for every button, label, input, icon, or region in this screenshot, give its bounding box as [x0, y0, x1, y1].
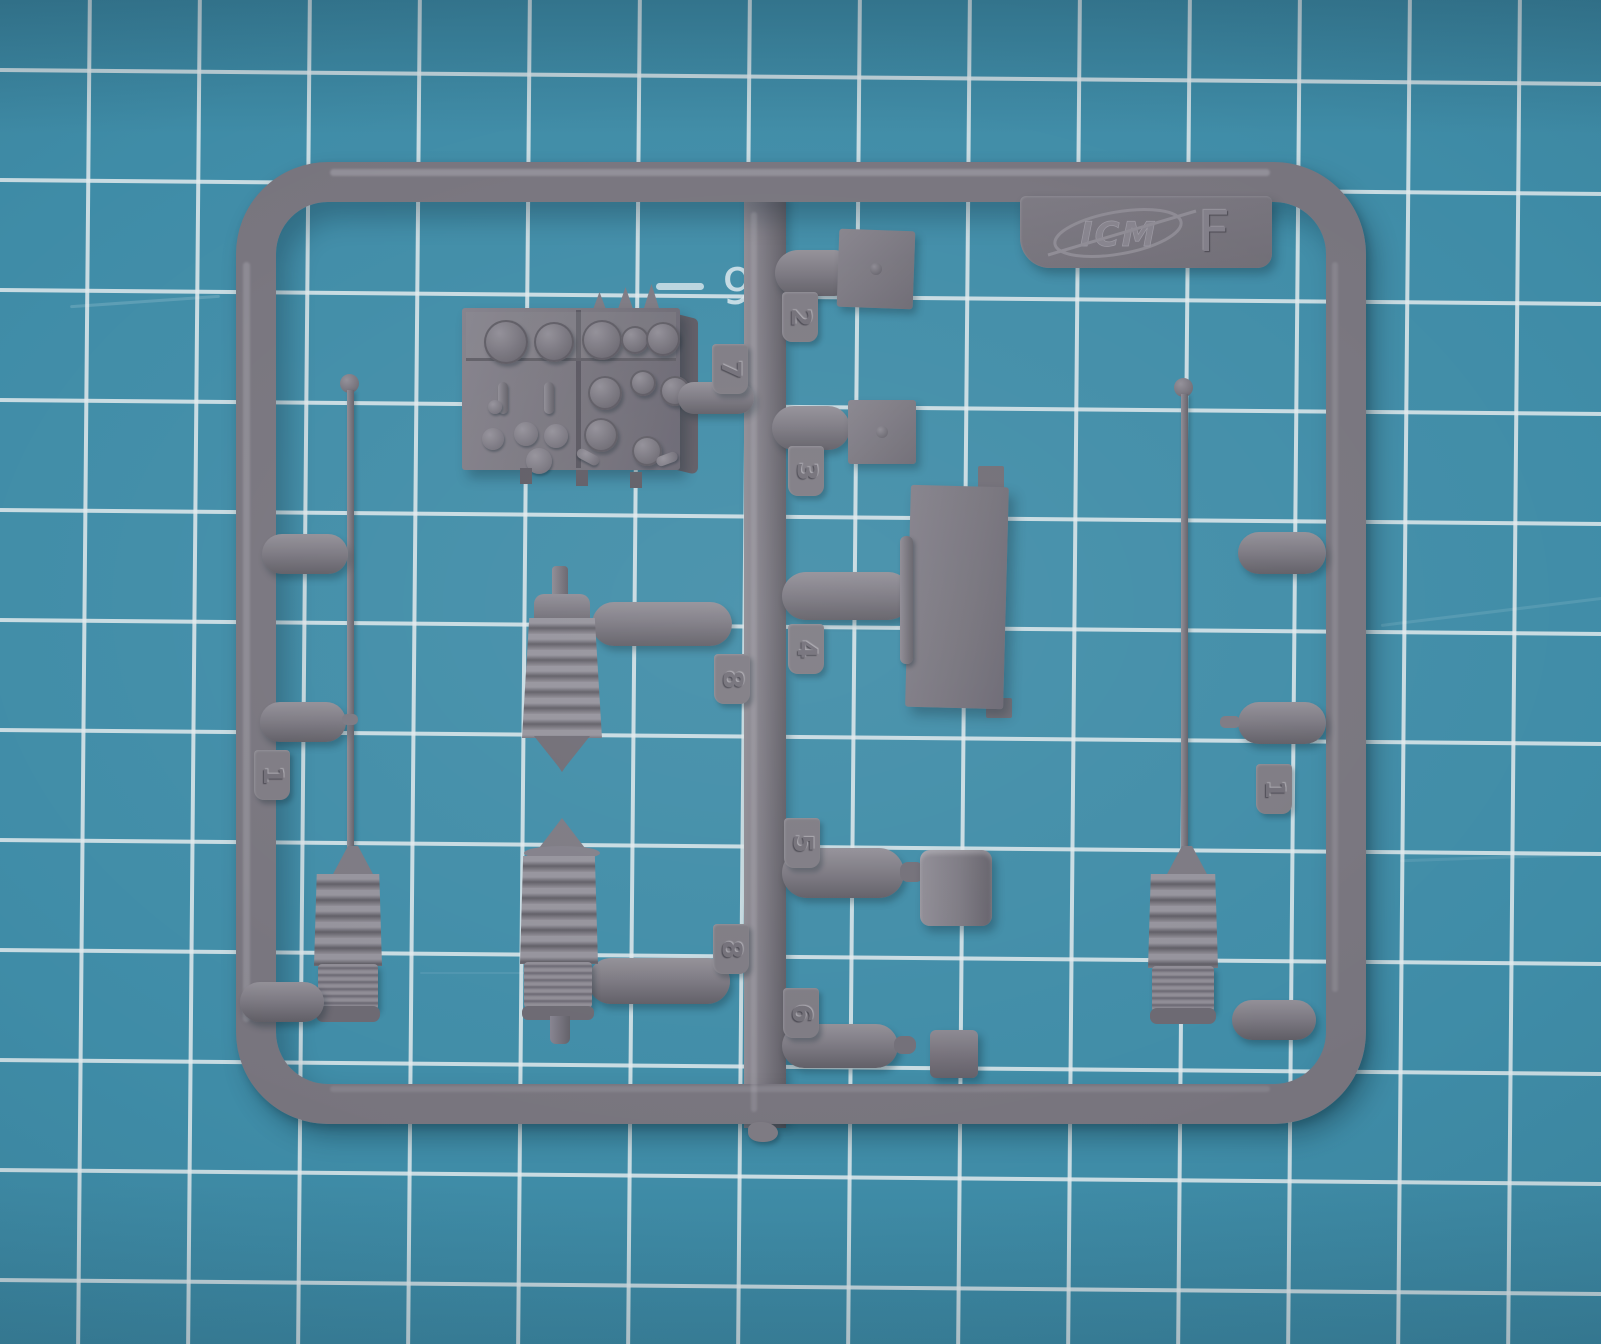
sprue-connector	[592, 602, 732, 646]
rail-stub-pin	[342, 714, 358, 725]
sprue-letter: F	[1198, 200, 1230, 265]
part-number-tab: 1	[254, 750, 290, 800]
bellows-part	[514, 818, 604, 1036]
cube-neck	[894, 1036, 916, 1054]
gauge-dial	[621, 326, 649, 354]
sprue-connector	[240, 982, 324, 1022]
antenna-rod	[1181, 394, 1188, 848]
part-number: 8	[716, 670, 747, 689]
knob	[544, 424, 568, 448]
runner-highlight	[751, 212, 757, 1112]
part-number-tab: 5	[784, 818, 820, 868]
part-number-tab: 2	[782, 292, 818, 342]
antenna-rod	[347, 390, 354, 850]
hatch-panel-part	[898, 464, 1010, 720]
knob	[514, 422, 538, 446]
part-number: 6	[785, 1004, 816, 1023]
antenna-spring-ribs	[314, 874, 382, 966]
rail-stub	[260, 702, 346, 742]
bellows-ribs	[522, 618, 602, 738]
part-number-tab: 4	[788, 624, 824, 674]
knob	[482, 428, 504, 450]
rail-stub	[262, 534, 348, 574]
rail-stub-pin	[1220, 716, 1240, 728]
instrument-panel-part	[458, 282, 708, 487]
brand-plate: ICM F	[1020, 196, 1272, 268]
part-number-tab: 6	[783, 988, 819, 1038]
knob	[488, 400, 502, 414]
sprue-connector	[772, 406, 850, 450]
bellows-tip	[534, 736, 590, 772]
icm-logo: ICM	[1034, 199, 1209, 265]
panel-foot	[576, 470, 588, 486]
bellows-ribs	[520, 856, 598, 964]
rail-stub	[1238, 702, 1326, 744]
part-number: 3	[790, 462, 821, 481]
bellows-stub	[550, 1016, 570, 1044]
part-number-tab: 8	[714, 654, 750, 704]
rail-highlight	[243, 262, 250, 1022]
part-number-tab: 3	[788, 446, 824, 496]
gauge-dial	[646, 322, 680, 356]
rail-highlight	[330, 169, 1270, 176]
drum-cylinder-part	[920, 850, 992, 926]
photo-stage: 9 ICM F	[0, 0, 1601, 1344]
part-number-tab: 7	[712, 344, 748, 394]
rail-stub	[1238, 532, 1326, 574]
part-number: 8	[715, 940, 746, 959]
panel-cone	[644, 284, 659, 308]
antenna-base	[316, 1006, 380, 1022]
part-number: 1	[1258, 780, 1289, 799]
cube-head-part	[930, 1030, 978, 1078]
square-plate-part	[848, 400, 916, 464]
gauge-dial	[484, 320, 528, 364]
antenna-spring-ribs	[1148, 874, 1218, 968]
plate-boss	[876, 426, 888, 438]
gauge-dial	[582, 320, 622, 360]
part-number: 1	[256, 766, 287, 785]
rail-highlight	[330, 1086, 1270, 1092]
antenna-base	[1150, 1008, 1216, 1024]
bellows-cap	[534, 594, 590, 622]
hatch-rib	[900, 536, 913, 664]
part-number: 5	[786, 834, 817, 853]
part-number: 2	[784, 308, 815, 327]
sprue-connector	[588, 958, 730, 1004]
toggle-switch	[544, 382, 554, 414]
hatch-face	[905, 485, 1009, 709]
bellows-part	[518, 566, 608, 776]
rail-highlight	[1332, 262, 1338, 992]
bellows-fine-ribs	[524, 962, 592, 1008]
gauge-dial	[630, 370, 656, 396]
gauge-dial	[534, 322, 574, 362]
panel-foot	[520, 468, 532, 484]
part-number: 4	[790, 640, 821, 659]
square-plate-part	[837, 229, 916, 310]
antenna-fine-ribs	[1152, 966, 1214, 1012]
plate-boss	[870, 263, 882, 275]
part-number-tab: 8	[713, 924, 749, 974]
part-number: 7	[714, 360, 745, 379]
sprue-connector	[782, 572, 912, 620]
panel-cone	[618, 287, 633, 309]
panel-foot	[630, 472, 642, 488]
antenna-fine-ribs	[318, 964, 378, 1010]
sprue-gate-flash	[748, 1122, 778, 1142]
gauge-dial	[588, 376, 622, 410]
part-number-tab: 1	[1256, 764, 1292, 814]
sprue-connector	[1232, 1000, 1316, 1040]
gauge-dial	[584, 418, 618, 452]
